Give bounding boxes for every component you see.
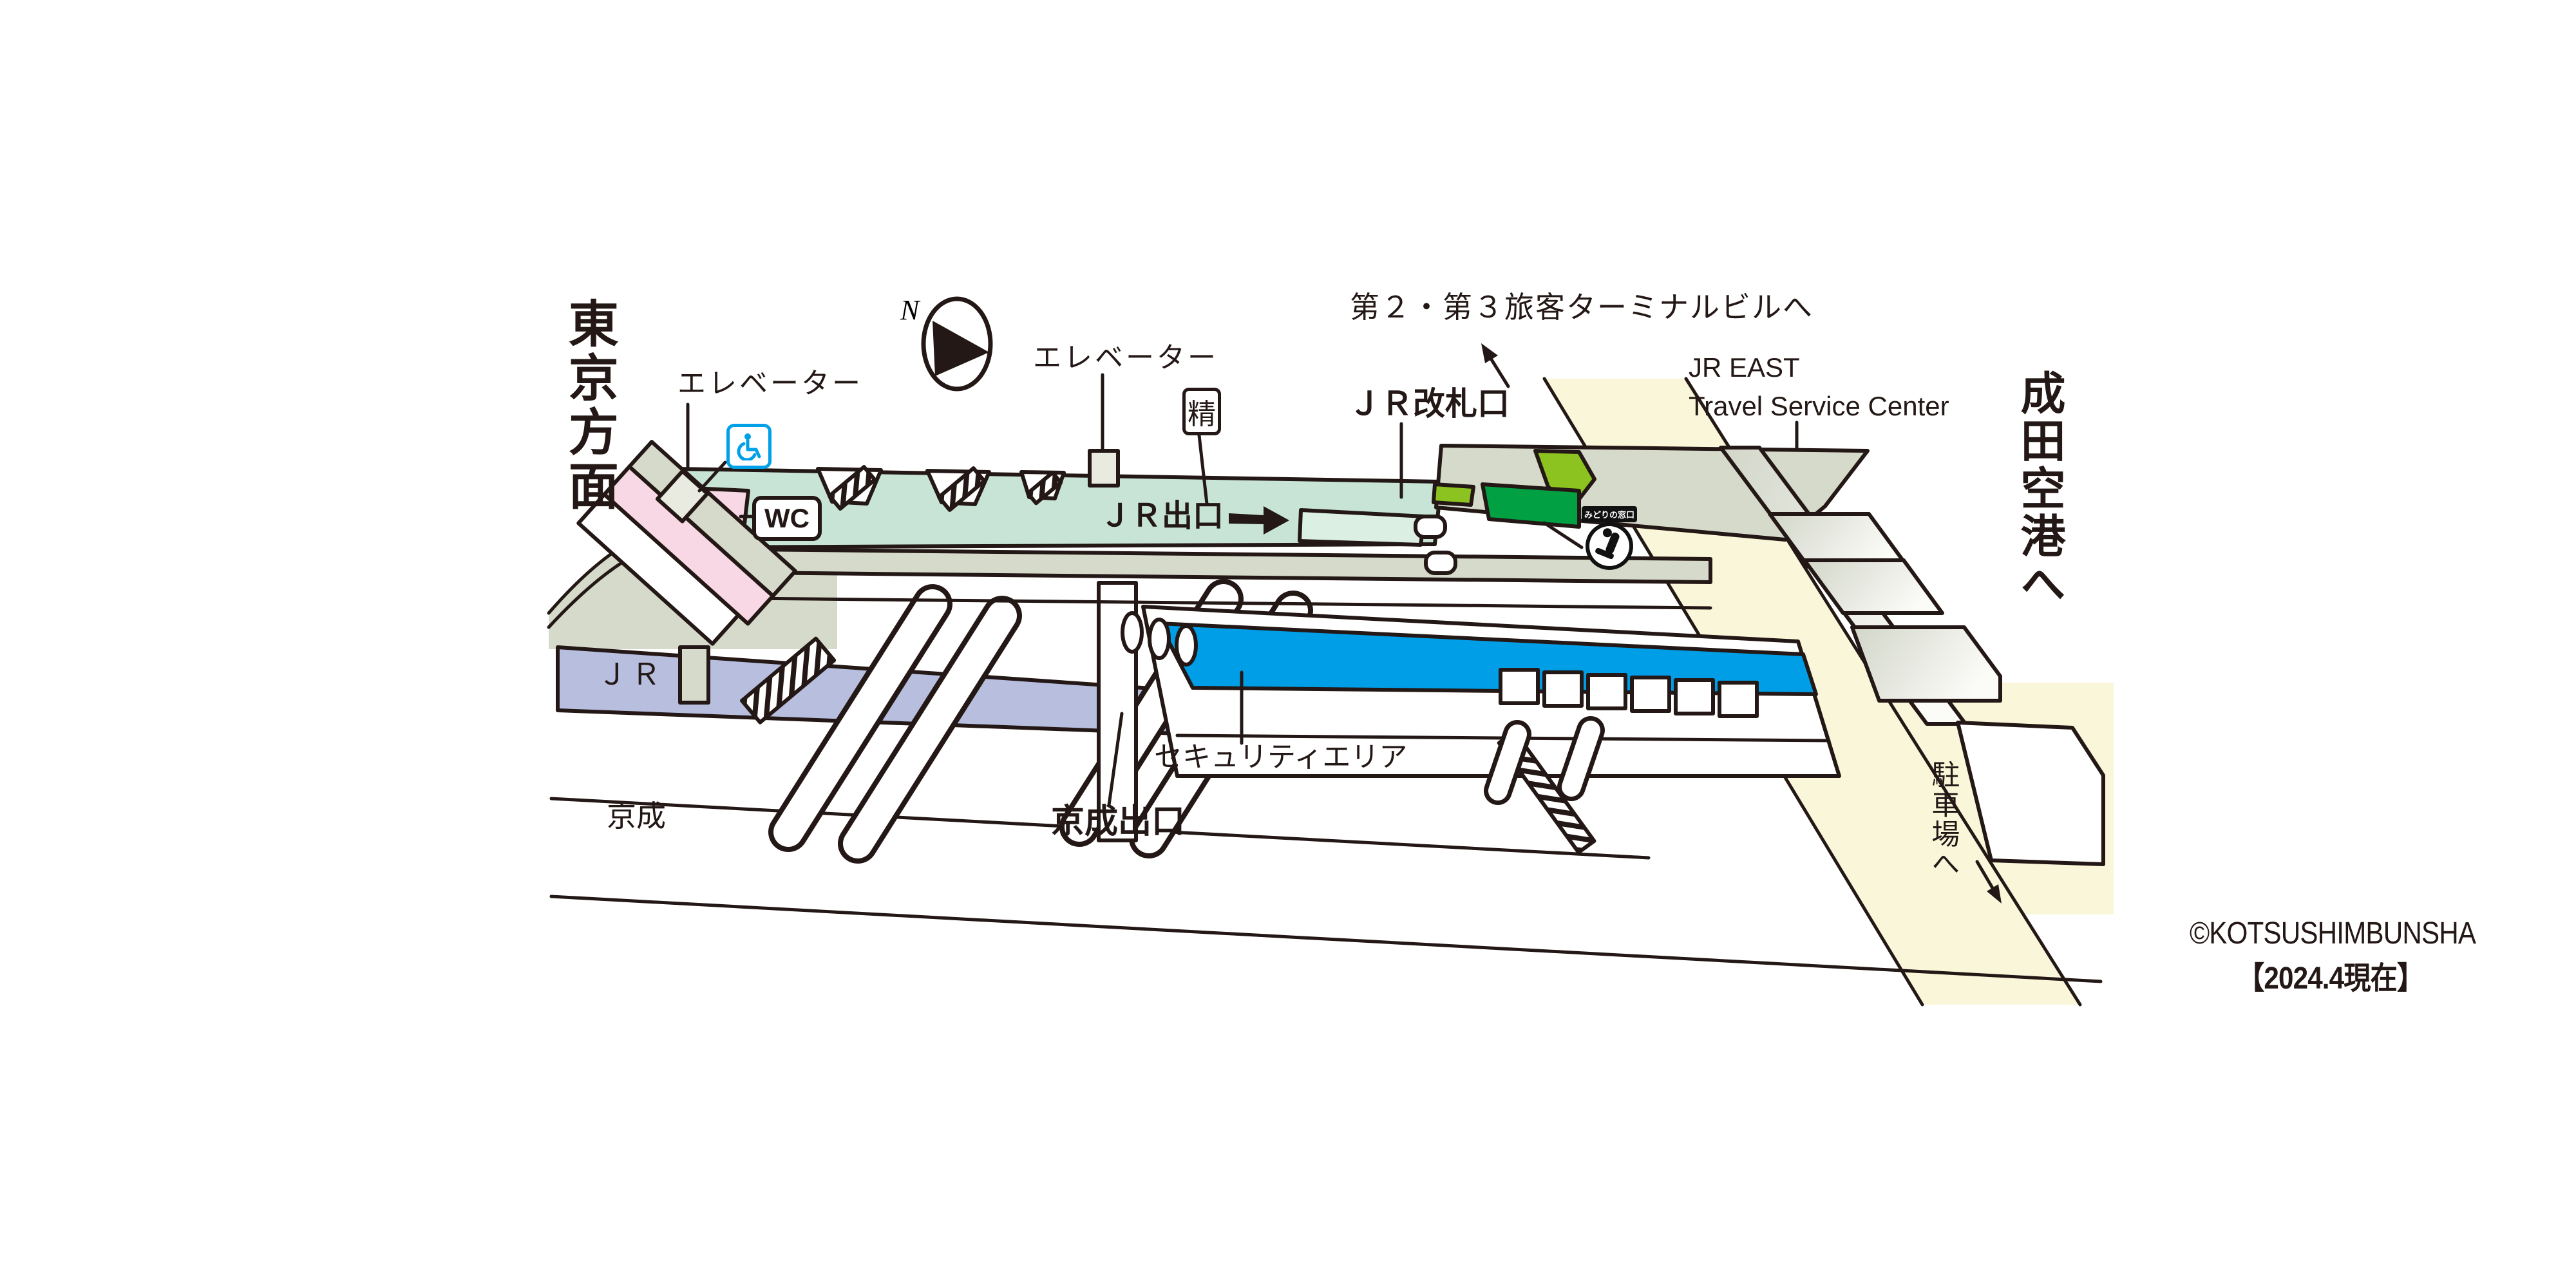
station-map-drawing: N xyxy=(0,0,2576,1288)
compass-north-label: N xyxy=(900,294,921,326)
security-area-label: セキュリティエリア xyxy=(1154,742,1407,773)
jr-platform-label: ＪＲ xyxy=(598,658,665,691)
parking-label: 駐車場へ xyxy=(1927,760,1958,878)
jr-exit-label: ＪＲ出口 xyxy=(1100,500,1224,534)
wc-badge: WC xyxy=(752,496,822,541)
midori-no-madoguchi-icon: みどりの窓口 xyxy=(1582,506,1637,571)
elevator-box xyxy=(1090,451,1118,486)
terminal-arrow xyxy=(1481,343,1508,386)
direction-narita-airport: 成田空港へ xyxy=(2014,370,2064,608)
jr-gate-label: ＪＲ改札口 xyxy=(1349,386,1510,422)
jr-east-travel-line1: JR EAST xyxy=(1689,353,1800,383)
copyright: ©KOTSUSHIMBUNSHA xyxy=(2190,917,2476,951)
midori-office xyxy=(1482,484,1579,527)
security-platform xyxy=(1122,607,1839,853)
compass-icon: N xyxy=(900,294,990,389)
gate-apron xyxy=(1300,510,1425,545)
date-note: 【2024.4現在】 xyxy=(2237,962,2423,996)
keisei-exit-label: 京成出口 xyxy=(1051,804,1185,840)
terminal-link-label: 第２・第３旅客ターミナルビルへ xyxy=(1350,291,1814,324)
gate-bollard xyxy=(1426,553,1455,573)
gate-bollard xyxy=(1416,516,1445,537)
jr-east-travel-line2: Travel Service Center xyxy=(1689,392,1949,421)
wheelchair-icon xyxy=(726,424,772,469)
station-map: N 東京方面 成田空港へ エレベーター エレベーター 第２・第３旅客ターミナルビ… xyxy=(0,0,2576,1288)
midori-no-madoguchi-label: みどりの窓口 xyxy=(1582,506,1637,522)
fare-adjustment-badge: 精 xyxy=(1182,388,1221,435)
elevator-center-label: エレベーター xyxy=(1033,343,1218,374)
elevator-left-label: エレベーター xyxy=(677,368,863,399)
keisei-platform-label: 京成 xyxy=(607,800,666,833)
pier xyxy=(680,647,708,703)
direction-tokyo: 東京方面 xyxy=(562,298,617,514)
